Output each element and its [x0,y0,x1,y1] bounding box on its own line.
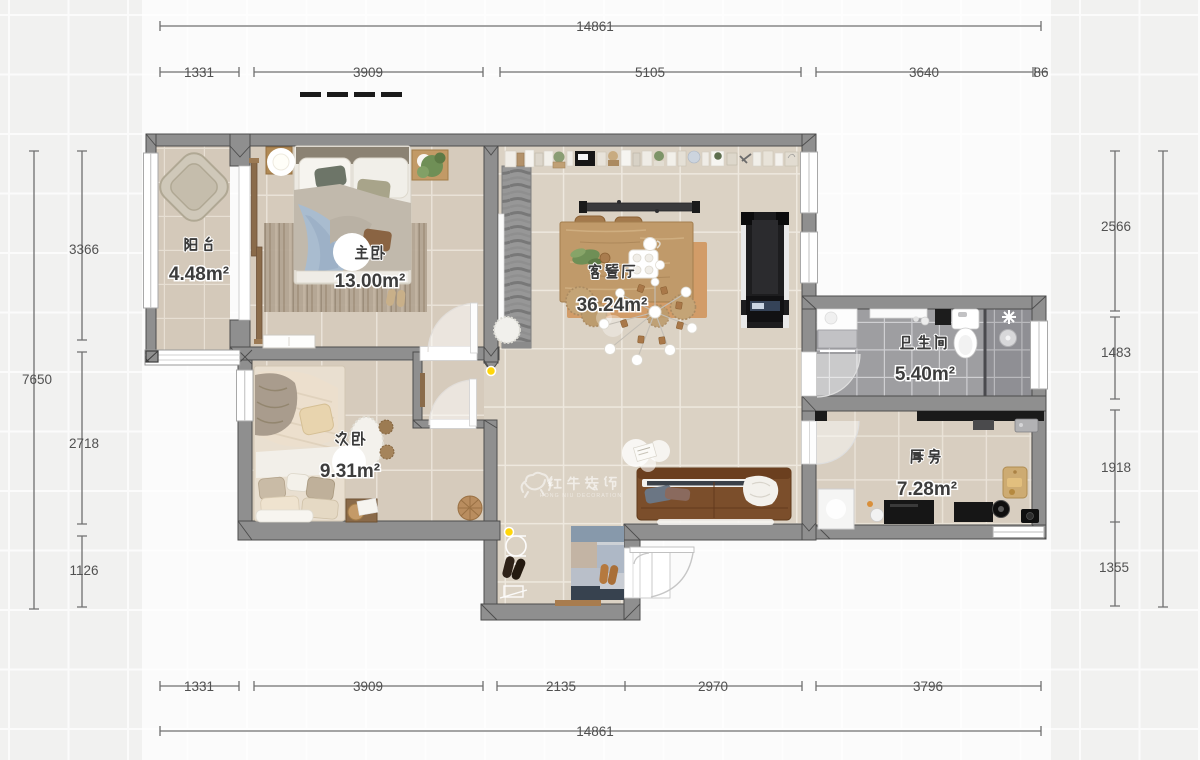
svg-text:1355: 1355 [1099,560,1129,575]
svg-text:2566: 2566 [1101,219,1131,234]
svg-text:7.28m²: 7.28m² [897,479,957,500]
svg-text:3909: 3909 [353,65,383,80]
svg-text:2970: 2970 [698,679,728,694]
svg-text:1918: 1918 [1101,460,1131,475]
svg-text:9.31m²: 9.31m² [320,461,380,482]
svg-text:1126: 1126 [69,563,98,578]
svg-text:36.24m²: 36.24m² [577,295,648,316]
svg-text:3909: 3909 [353,679,383,694]
svg-text:3640: 3640 [909,65,939,80]
svg-text:5.40m²: 5.40m² [895,364,955,385]
svg-text:14861: 14861 [576,19,614,34]
svg-text:4.48m²: 4.48m² [169,264,229,285]
svg-text:1483: 1483 [1101,345,1131,360]
svg-text:1331: 1331 [184,679,214,694]
svg-text:13.00m²: 13.00m² [335,271,406,292]
svg-text:HONG NIU DECORATION: HONG NIU DECORATION [540,493,622,499]
svg-text:2718: 2718 [69,436,99,451]
svg-text:3366: 3366 [69,242,99,257]
svg-text:5105: 5105 [635,65,665,80]
svg-text:1331: 1331 [184,65,214,80]
svg-text:2135: 2135 [546,679,576,694]
svg-text:3796: 3796 [913,679,943,694]
svg-text:14861: 14861 [576,724,614,739]
svg-text:86: 86 [1033,65,1048,80]
svg-text:7650: 7650 [22,372,52,387]
